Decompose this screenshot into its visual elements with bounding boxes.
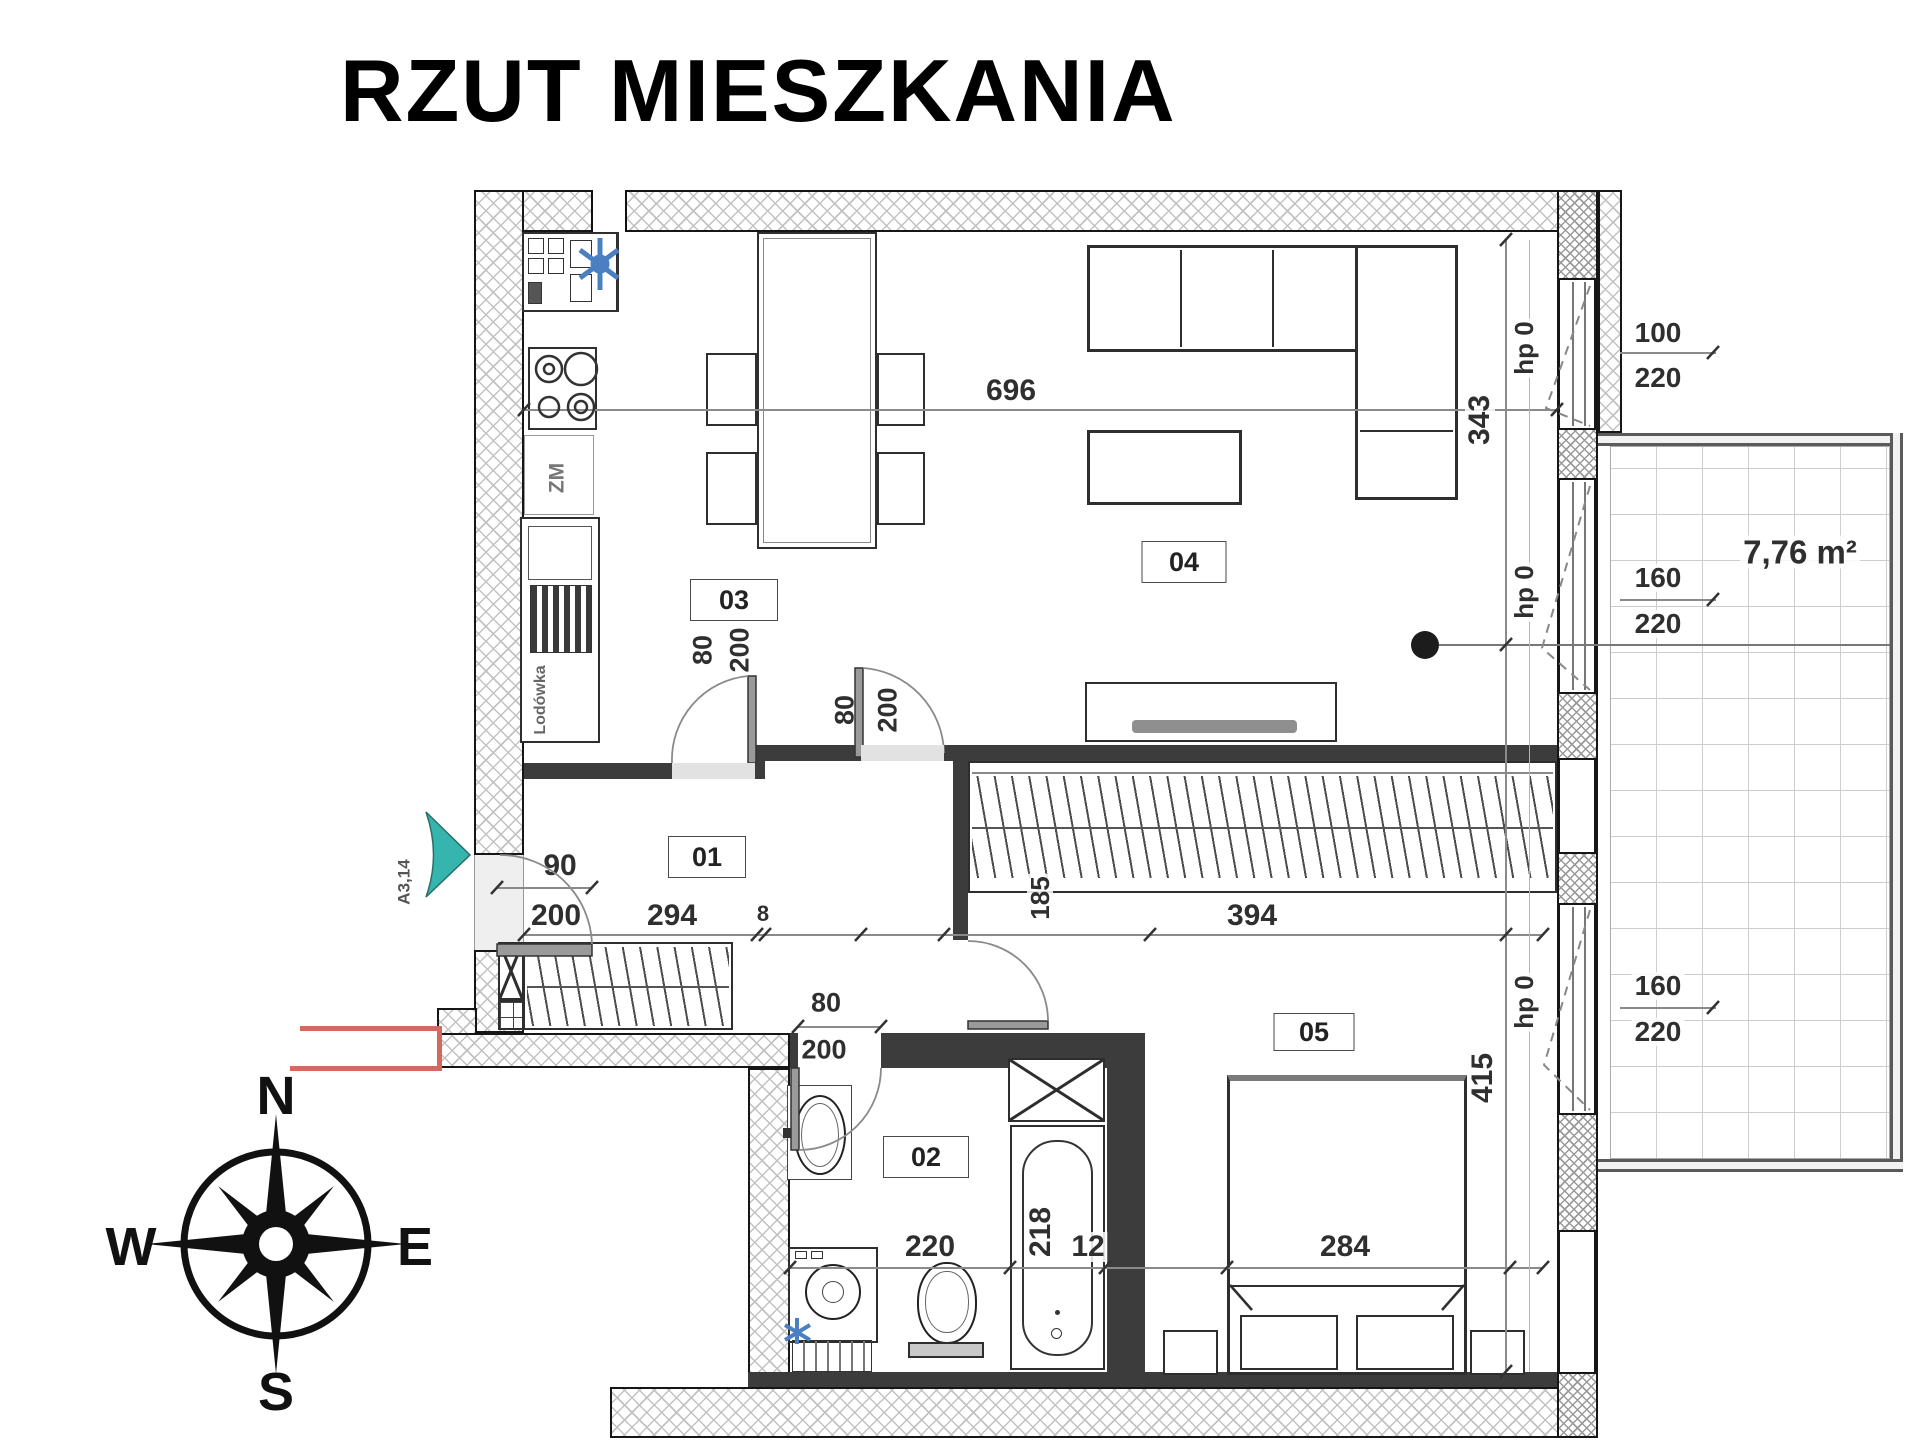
kitchen-faucet-icon xyxy=(580,238,618,290)
door-kitchen xyxy=(672,676,756,779)
window-swing-dashes xyxy=(1542,286,1590,1110)
dimension-ticks xyxy=(491,233,1719,1378)
shaft-x-icon xyxy=(500,944,1103,1120)
bath-water-icon xyxy=(785,1318,810,1344)
door-living xyxy=(855,668,944,761)
door-bedroom xyxy=(968,941,1048,1029)
bed-fold-marks xyxy=(1230,1285,1464,1310)
door-entrance xyxy=(497,855,592,956)
stove-burners-icon xyxy=(536,353,597,420)
floor-plan: RZUT MIESZKANIA 7,76 m² ZM xyxy=(0,0,1920,1440)
compass-icon xyxy=(146,1114,406,1374)
plan-overlay xyxy=(0,0,1920,1440)
door-bath xyxy=(791,1068,881,1150)
entrance-arrow-icon xyxy=(426,812,470,897)
